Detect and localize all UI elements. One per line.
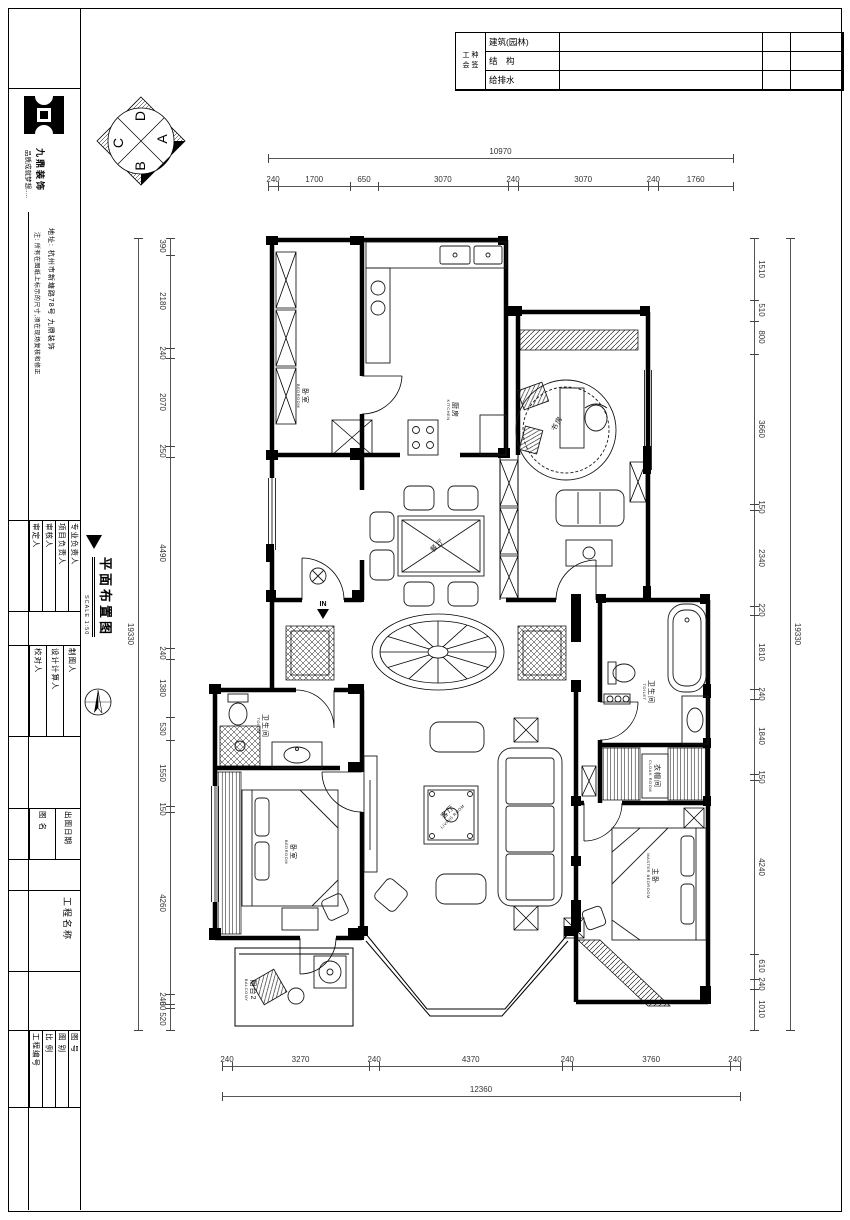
dim-tick [750, 780, 759, 781]
dim-tick [134, 238, 143, 239]
room-name-en: MASTER BEDROOM [646, 853, 650, 898]
dim-tick [166, 806, 175, 807]
room-name-en: KITCHEN [446, 399, 450, 420]
dim-tick [750, 699, 759, 700]
room-name-en: TOILET [256, 718, 260, 735]
room-name-en: BEDROOM [296, 384, 300, 408]
dim-value: 4370 [462, 1055, 480, 1064]
dim-tick [750, 1030, 759, 1031]
dim-value: 1510 [757, 260, 766, 278]
dim-value: 150 [757, 770, 766, 783]
dim-value: 1550 [158, 764, 167, 782]
dim-tick [166, 1004, 175, 1005]
dim-value: 3070 [574, 175, 592, 184]
dim-tick [740, 1062, 741, 1071]
dim-tick [750, 510, 759, 511]
dim-line-left [170, 238, 171, 1030]
dim-tick [750, 354, 759, 355]
dim-line-bottom-overall [222, 1096, 740, 1097]
room-label-balcony: 阳台2BALCONY [244, 979, 256, 1002]
dim-value: 1760 [687, 175, 705, 184]
dim-value: 3660 [757, 420, 766, 438]
room-name-cn: 卫生间 [646, 680, 654, 704]
room-name-en: TOILET [642, 684, 646, 701]
dim-tick [134, 1030, 143, 1031]
dim-tick [740, 1092, 741, 1101]
dim-tick [350, 182, 351, 191]
dim-tick [166, 659, 175, 660]
dim-value: 390 [158, 240, 167, 253]
dim-tick [750, 989, 759, 990]
dim-tick [268, 154, 269, 163]
room-name-cn: 卧室 [288, 844, 296, 860]
dim-overall: 19330 [126, 623, 135, 645]
dim-tick [166, 255, 175, 256]
dim-value: 80 [158, 1002, 167, 1011]
room-name-cn: 餐厅 [430, 538, 447, 555]
dim-value: 530 [158, 722, 167, 735]
room-label-bedroom_left: 卧室BEDROOM [284, 840, 296, 864]
room-label-bedroom_top: 卧室BEDROOM [296, 384, 308, 408]
annotation-overlay: 2401700650307024030702401760109702403270… [0, 0, 850, 1220]
dim-line-top-overall [268, 158, 733, 159]
room-label-toilet_master: 卫生间TOILET [642, 680, 654, 704]
dim-tick [166, 358, 175, 359]
dim-tick [166, 457, 175, 458]
room-name-cn: 厨房 [450, 402, 458, 418]
dim-tick [518, 182, 519, 191]
dim-tick [750, 238, 759, 239]
dim-value: 3270 [292, 1055, 310, 1064]
room-name-cn: 卫生间 [260, 714, 268, 738]
dim-value: 150 [757, 500, 766, 513]
dim-value: 800 [757, 330, 766, 343]
dim-tick [166, 648, 175, 649]
dim-value: 1010 [757, 1000, 766, 1018]
dim-tick [166, 717, 175, 718]
room-label-toilet_left: 卫生间TOILET [256, 714, 268, 738]
dim-value: 610 [757, 960, 766, 973]
dim-tick [572, 1062, 573, 1071]
dim-tick [750, 615, 759, 616]
dim-value: 2070 [158, 393, 167, 411]
dim-tick [378, 182, 379, 191]
room-label-dining: 餐厅 [430, 538, 447, 555]
dim-overall: 12360 [470, 1085, 492, 1094]
dim-tick [166, 740, 175, 741]
dim-tick [166, 238, 175, 239]
dim-tick [750, 321, 759, 322]
dim-tick [786, 238, 795, 239]
dim-tick [278, 182, 279, 191]
dim-value: 520 [158, 1012, 167, 1025]
dim-tick [166, 348, 175, 349]
dim-value: 1810 [757, 643, 766, 661]
room-name-en: BEDROOM [284, 840, 288, 864]
dim-tick [733, 182, 734, 191]
dim-tick [750, 300, 759, 301]
dim-tick [166, 446, 175, 447]
room-name-en: BALCONY [244, 979, 248, 1002]
dim-tick [166, 1008, 175, 1009]
dim-value: 4260 [158, 894, 167, 912]
dim-value: 650 [357, 175, 370, 184]
dim-value: 3070 [434, 175, 452, 184]
dim-value: 4490 [158, 544, 167, 562]
dim-value: 1380 [158, 679, 167, 697]
dim-value: 3760 [642, 1055, 660, 1064]
drawing-sheet: 工 种 会 签 建筑(园林) 结 构 给排水 九鼎装饰 品质成就梦想..... … [0, 0, 850, 1220]
room-name-cn: 阳台2 [248, 980, 256, 1001]
dim-tick [786, 1030, 795, 1031]
dim-overall: 10970 [489, 147, 511, 156]
dim-tick [658, 182, 659, 191]
dim-tick [166, 994, 175, 995]
room-label-cloak: 衣帽间CLOAK ROOM [648, 760, 660, 792]
dim-value: 1840 [757, 727, 766, 745]
dim-line-top [268, 186, 733, 187]
dim-line-left-overall [138, 238, 139, 1030]
dim-value: 150 [158, 803, 167, 816]
room-label-kitchen: 厨房KITCHEN [446, 399, 458, 420]
dim-tick [232, 1062, 233, 1071]
room-label-master: 主卧MASTER BEDROOM [646, 853, 658, 898]
dim-value: 2180 [158, 292, 167, 310]
dim-tick [222, 1092, 223, 1101]
dim-tick [750, 954, 759, 955]
room-name-cn: 书房 [551, 415, 566, 433]
dim-value: 1700 [305, 175, 323, 184]
dim-tick [379, 1062, 380, 1071]
room-name-cn: 卧室 [300, 388, 308, 404]
dim-tick [166, 1030, 175, 1031]
room-name-cn: 主卧 [650, 868, 658, 884]
dim-overall: 19330 [793, 623, 802, 645]
dim-value: 4240 [757, 858, 766, 876]
room-name-cn: 衣帽间 [652, 764, 660, 788]
dim-value: 2340 [757, 549, 766, 567]
dim-line-right [754, 238, 755, 1030]
dim-tick [166, 812, 175, 813]
dim-line-bottom [222, 1066, 740, 1067]
room-label-living: 客厅LIVING ROOM [434, 798, 465, 829]
dim-tick [733, 154, 734, 163]
room-label-study: 书房 [551, 415, 566, 433]
dim-value: 510 [757, 304, 766, 317]
dim-line-right-overall [790, 238, 791, 1030]
room-name-en: CLOAK ROOM [648, 760, 652, 792]
